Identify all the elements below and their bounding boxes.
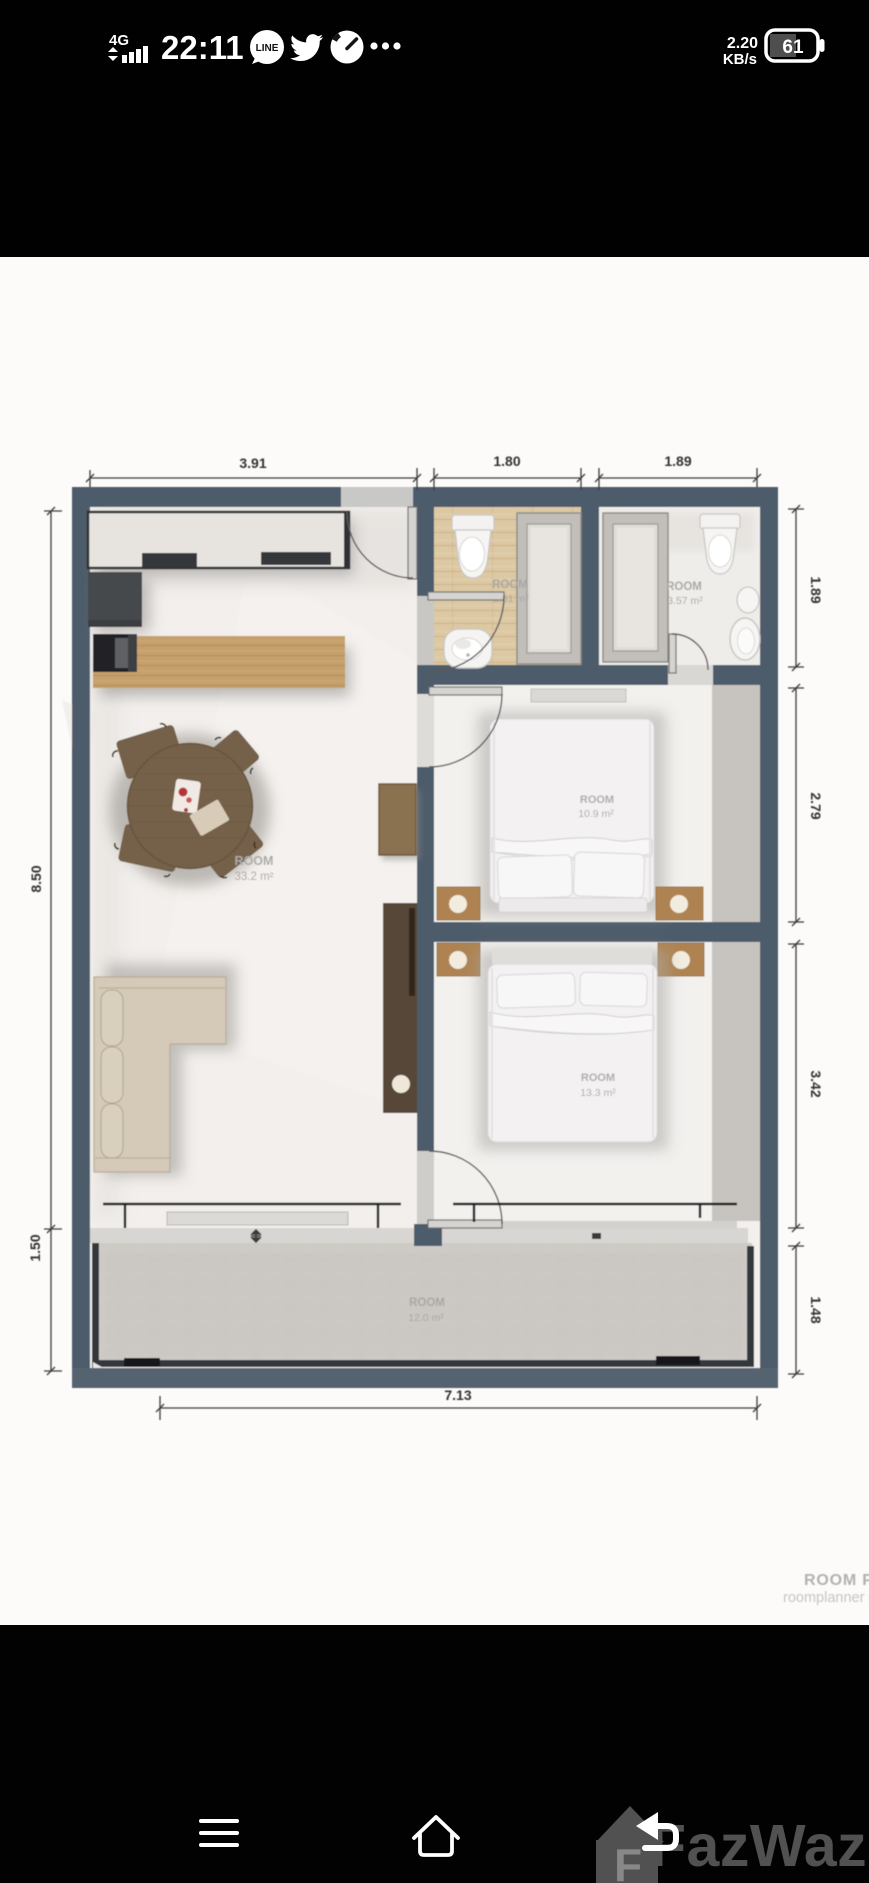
svg-text:8.50: 8.50 [28, 865, 44, 892]
svg-text:12.0 m²: 12.0 m² [408, 1312, 444, 1324]
svg-text:ROOM: ROOM [580, 794, 614, 806]
svg-text:13.3 m²: 13.3 m² [580, 1087, 616, 1099]
svg-text:1.89: 1.89 [808, 576, 824, 603]
svg-text:61: 61 [782, 37, 804, 58]
svg-text:ROOM: ROOM [235, 854, 274, 868]
svg-text:3.42: 3.42 [808, 1070, 824, 1097]
svg-text:roomplanner 5D: roomplanner 5D [783, 1590, 869, 1606]
svg-text:4G: 4G [109, 32, 129, 49]
svg-text:FazWaz: FazWaz [650, 1813, 867, 1879]
svg-text:ROOM: ROOM [409, 1297, 445, 1309]
svg-text:ROOM: ROOM [581, 1072, 615, 1084]
svg-text:1.80: 1.80 [493, 453, 520, 469]
svg-text:7.13: 7.13 [444, 1387, 471, 1403]
svg-text:F: F [614, 1839, 642, 1883]
svg-text:ROOM: ROOM [666, 581, 702, 593]
svg-text:3.91: 3.91 [239, 455, 266, 471]
svg-text:1.50: 1.50 [27, 1234, 43, 1261]
svg-text:10.9 m²: 10.9 m² [578, 808, 614, 820]
svg-text:33.2 m²: 33.2 m² [235, 871, 274, 883]
svg-text:LINE: LINE [256, 43, 279, 54]
svg-text:1.89: 1.89 [664, 453, 691, 469]
svg-text:2.20: 2.20 [727, 35, 758, 52]
svg-text:3.57 m²: 3.57 m² [667, 595, 703, 607]
svg-text:2.79: 2.79 [808, 792, 824, 819]
svg-text:ROOM: ROOM [492, 579, 528, 591]
svg-text:KB/s: KB/s [723, 51, 757, 68]
svg-text:1.48: 1.48 [808, 1296, 824, 1323]
svg-text:ROOM PLANNER: ROOM PLANNER [804, 1572, 869, 1589]
svg-text:22:11: 22:11 [161, 29, 244, 66]
